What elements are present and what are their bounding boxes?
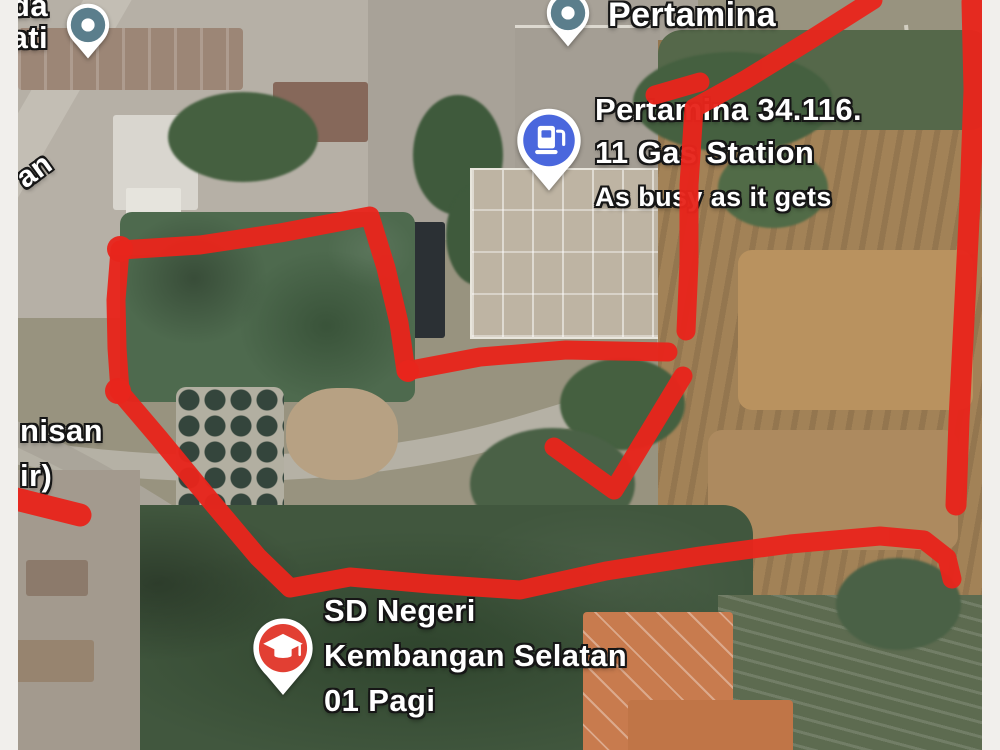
annotation-left-stub <box>18 498 80 515</box>
annotation-cross-stub <box>655 82 700 95</box>
annotation-parcel-outline <box>116 216 668 391</box>
annotation-corner-node <box>397 360 419 382</box>
annotation-vertical-line <box>686 108 694 331</box>
annotation-right-line <box>956 2 974 505</box>
screenshot-page: da ati an Pertamina Pertamina 34.116. 11… <box>0 0 1000 750</box>
annotation-parcel-bottom <box>119 391 952 590</box>
annotation-top-diagonal <box>696 0 873 107</box>
annotation-corner-node <box>105 378 131 404</box>
annotation-corner-node <box>107 236 133 262</box>
map-canvas[interactable]: da ati an Pertamina Pertamina 34.116. 11… <box>18 0 982 750</box>
red-annotation-overlay <box>18 0 982 750</box>
annotation-checkmark <box>554 376 683 490</box>
